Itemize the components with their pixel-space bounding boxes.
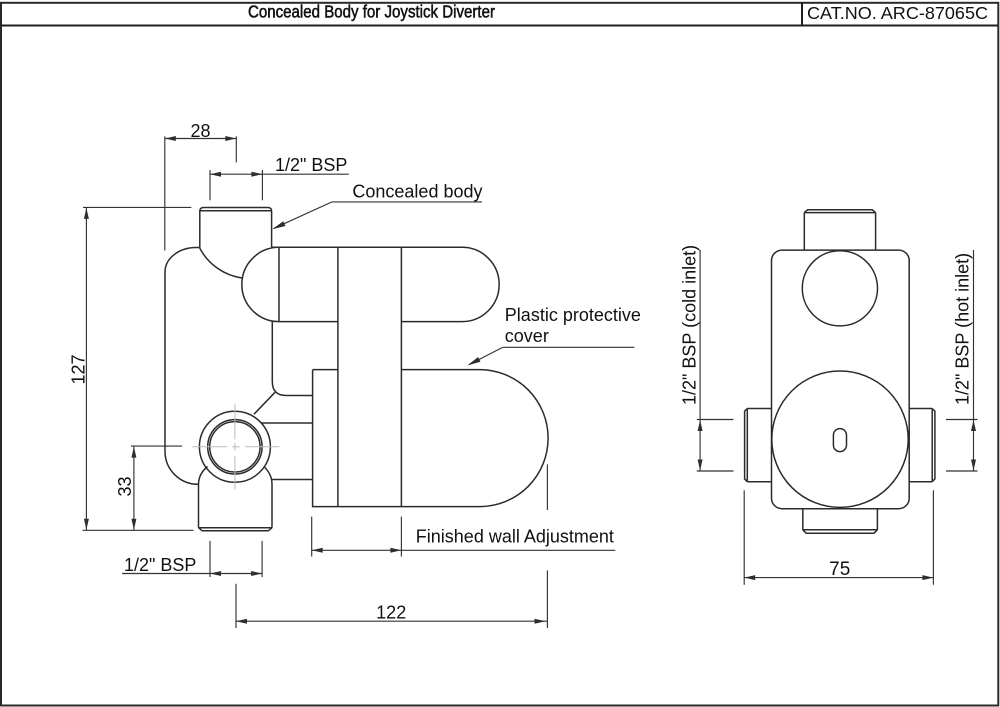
svg-text:1/2" BSP (cold inlet): 1/2" BSP (cold inlet): [680, 245, 700, 405]
svg-text:Concealed body: Concealed body: [352, 182, 482, 202]
svg-text:33: 33: [115, 476, 135, 496]
svg-text:cover: cover: [505, 326, 549, 346]
svg-text:28: 28: [190, 121, 210, 141]
svg-text:Concealed Body for Joystick Di: Concealed Body for Joystick Diverter: [248, 2, 495, 22]
svg-text:75: 75: [829, 559, 850, 580]
svg-text:122: 122: [376, 603, 406, 623]
svg-text:Finished wall Adjustment: Finished wall Adjustment: [416, 526, 614, 546]
svg-text:Plastic protective: Plastic protective: [505, 305, 641, 325]
svg-text:127: 127: [69, 354, 89, 384]
svg-text:1/2" BSP: 1/2" BSP: [124, 555, 196, 575]
svg-text:1/2" BSP (hot inlet): 1/2" BSP (hot inlet): [953, 253, 973, 405]
svg-text:1/2" BSP: 1/2" BSP: [275, 155, 347, 175]
svg-text:CAT.NO. ARC-87065C: CAT.NO. ARC-87065C: [807, 3, 988, 23]
